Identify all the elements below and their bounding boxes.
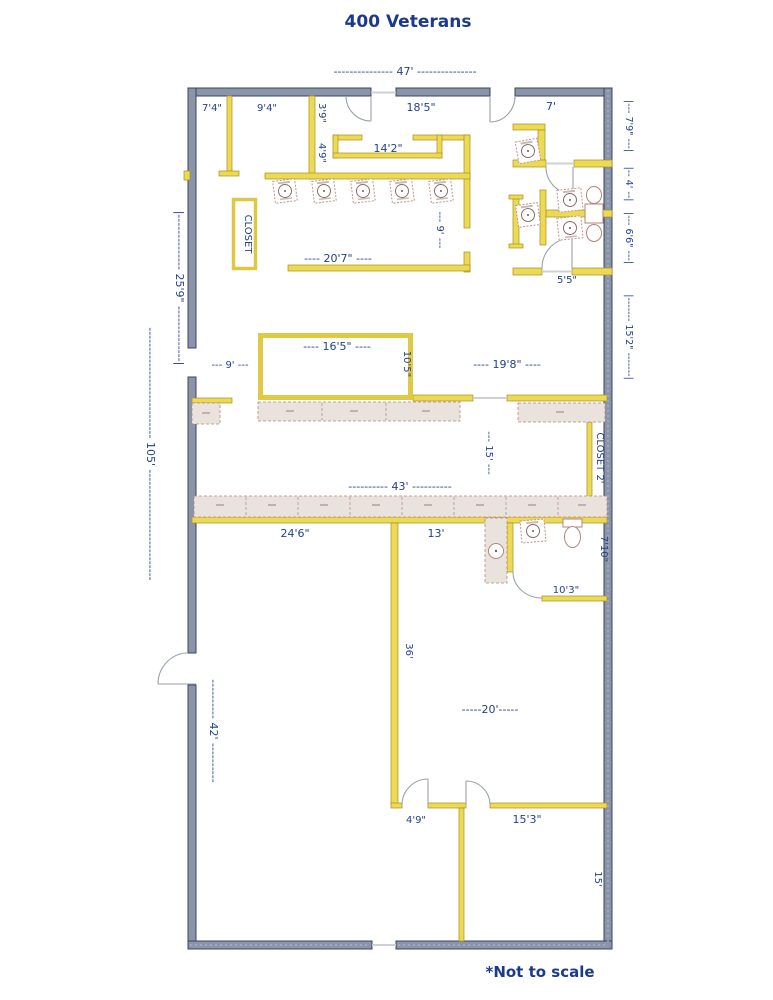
- sink-fixture: [520, 519, 546, 543]
- dim-9-corridor: --- 9' ---: [434, 211, 445, 249]
- door-top-right: [490, 96, 515, 122]
- dim-7-4: 7'4": [202, 103, 222, 114]
- sink-fixture: [557, 188, 583, 212]
- dim-3-9: 3'9": [316, 103, 327, 123]
- dim-15-2: |------- 15'2" -------|: [623, 294, 634, 380]
- page-title: 400 Veterans: [345, 12, 472, 32]
- floor-plan-page: { "title": "400 Veterans", "footnote": "…: [0, 0, 773, 1000]
- dim-16-5: ---- 16'5" ----: [303, 340, 371, 353]
- door-top-center: [346, 96, 371, 121]
- dim-20-7: ---- 20'7" ----: [304, 252, 372, 265]
- sink-fixture: [351, 179, 376, 204]
- door-bottom-left: [402, 779, 428, 805]
- door-left-exterior: [158, 653, 196, 684]
- dim-42: ---------- 42' ----------: [207, 679, 220, 782]
- sink-fixture: [516, 203, 541, 228]
- dim-15-3: 15'3": [512, 813, 541, 826]
- dim-15-mid: --- 15' ---: [483, 431, 494, 475]
- door-bottom-right: [466, 781, 490, 805]
- sink-fixture: [273, 179, 298, 204]
- door-restroom-2: [542, 238, 572, 268]
- closet-2-label: CLOSET 2': [594, 432, 605, 483]
- dim-7-9: |--- 7'9" ---|: [623, 100, 634, 152]
- dim-20: -----20'-----: [462, 703, 519, 716]
- drinking-fountain: [489, 544, 504, 559]
- toilet-fixture: [563, 519, 582, 548]
- dim-19-8: ---- 19'8" ----: [473, 358, 541, 371]
- dim-4-9: 4'9": [316, 143, 327, 163]
- dim-18-5: 18'5": [406, 101, 435, 114]
- dim-13: 13': [427, 527, 444, 540]
- sink-fixture: [390, 179, 415, 204]
- dim-5-5: 5'5": [557, 275, 577, 286]
- closet-1-label: CLOSET: [242, 215, 253, 255]
- dim-105: ---------------------------- 105' ------…: [144, 327, 157, 580]
- dim-7: 7': [546, 100, 556, 113]
- dim-25-9: |-------------- 25'9" --------------|: [173, 211, 186, 366]
- dim-10-3: 10'3": [553, 585, 579, 596]
- sink-fixture: [429, 179, 454, 204]
- dim-15-br: 15': [592, 871, 603, 886]
- dim-43: ---------- 43' ----------: [348, 480, 451, 493]
- dim-4-9b: 4'9": [406, 815, 426, 826]
- dim-4ft: |-- 4' --|: [623, 167, 634, 202]
- sink-fixture: [557, 216, 583, 240]
- dim-10-5: 10'5": [401, 351, 412, 377]
- sink-fixture: [312, 179, 337, 204]
- dim-24-6: 24'6": [280, 527, 309, 540]
- dim-9-4: 9'4": [257, 103, 277, 114]
- sink-fixture: [515, 138, 540, 163]
- footnote: *Not to scale: [485, 963, 594, 981]
- door-mid-bathroom: [513, 572, 542, 598]
- toilet-fixture-back-to-back: [585, 187, 603, 242]
- dim-9-left: --- 9' ---: [211, 360, 249, 371]
- floor-plan-svg: 400 Veterans --------------- 47' -------…: [0, 0, 773, 1000]
- dim-36: 36': [403, 643, 414, 658]
- dim-top-width: --------------- 47' ---------------: [333, 65, 476, 78]
- dim-14-2: 14'2": [373, 142, 402, 155]
- dim-6-6: |--- 6'6" ---|: [623, 212, 634, 264]
- dim-7-10: 7'10": [598, 536, 609, 562]
